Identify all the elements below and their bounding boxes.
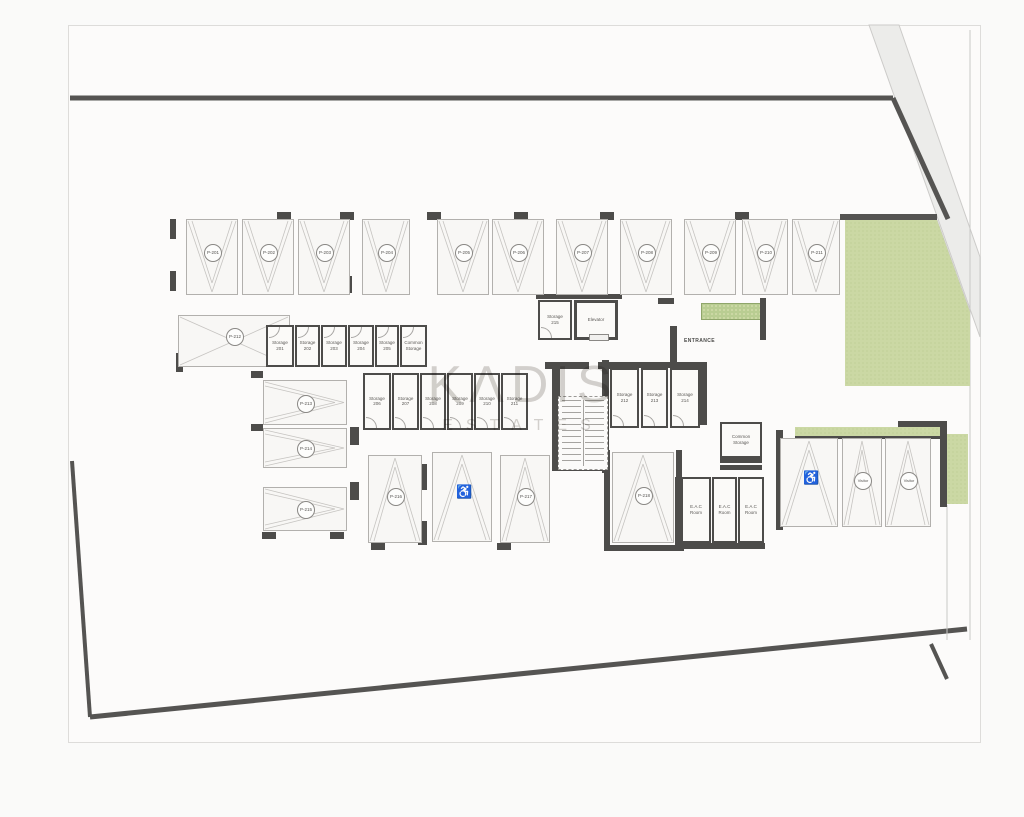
wall <box>720 458 762 463</box>
door-arc <box>395 417 406 428</box>
door-arc <box>269 327 280 338</box>
room-label: E.A.CRoom <box>740 504 762 515</box>
wheelchair-icon: ♿ <box>803 470 819 486</box>
room-label: Storage212 <box>612 392 637 403</box>
parking-stall-p-204: P-204 <box>362 219 410 295</box>
room-label: CommonStorage <box>722 434 760 445</box>
door-arc <box>541 327 552 338</box>
stall-label: Visitor <box>854 472 872 490</box>
pillar <box>330 532 344 539</box>
wall <box>898 421 947 427</box>
room-label: Storage201 <box>268 340 292 351</box>
parking-stall-p-217: P-217 <box>500 455 550 543</box>
wall <box>940 421 947 507</box>
door-arc <box>613 415 624 426</box>
door-arc <box>298 327 309 338</box>
stall-label: P-204 <box>378 244 396 262</box>
pillar <box>170 219 176 239</box>
entrance-label: ENTRANCE <box>684 338 715 344</box>
parking-stall-p-205: P-205 <box>437 219 489 295</box>
wall <box>604 545 684 551</box>
pillar <box>251 371 263 378</box>
staircase <box>558 396 608 470</box>
pillar <box>350 482 359 500</box>
elevator-room: Elevator <box>574 300 618 340</box>
storage-room-storage: CommonStorage <box>400 325 427 367</box>
parking-stall-accessible: ♿ <box>780 438 838 527</box>
storage-room-202: Storage202 <box>295 325 320 367</box>
door-arc <box>423 417 434 428</box>
stall-label: P-201 <box>204 244 222 262</box>
door-arc <box>644 415 655 426</box>
room-label: Storage207 <box>394 395 417 406</box>
storage-room-212: Storage212 <box>610 368 639 428</box>
parking-stall-p-210: P-210 <box>742 219 788 295</box>
storage-room-207: Storage207 <box>392 373 419 430</box>
pillar <box>350 427 359 445</box>
stair-flight <box>585 400 604 466</box>
storage-room-206: Storage206 <box>363 373 391 430</box>
pillar <box>262 532 276 539</box>
stall-label: P-215 <box>297 501 315 519</box>
green-area <box>701 303 763 320</box>
parking-stall-p-209: P-209 <box>684 219 736 295</box>
stall-label: P-203 <box>316 244 334 262</box>
wall <box>658 298 674 304</box>
common-room: CommonStorage <box>720 422 762 458</box>
parking-stall-p-216: P-216 <box>368 455 422 543</box>
stall-label: P-213 <box>297 395 315 413</box>
storage-room-210: Storage210 <box>474 373 500 430</box>
green-area <box>947 434 968 504</box>
parking-stall-p-208: P-208 <box>620 219 672 295</box>
e-a-c-room: E.A.CRoom <box>712 477 737 543</box>
room-label: Storage215 <box>540 314 570 325</box>
parking-stall-p-207: P-207 <box>556 219 608 295</box>
door-arc <box>378 327 389 338</box>
storage-room-215: Storage215 <box>538 300 572 340</box>
wall <box>675 543 765 549</box>
pillar <box>371 543 385 550</box>
stall-label: P-205 <box>455 244 473 262</box>
storage-room-204: Storage204 <box>348 325 374 367</box>
wall <box>720 465 762 470</box>
door-arc <box>673 415 684 426</box>
parking-stall-p-211: P-211 <box>792 219 840 295</box>
storage-room-203: Storage203 <box>321 325 347 367</box>
e-a-c-room: E.A.CRoom <box>738 477 764 543</box>
room-label: E.A.CRoom <box>683 504 709 515</box>
door-arc <box>477 417 488 428</box>
parking-stall-p-213: P-213 <box>263 380 347 425</box>
room-label: Storage205 <box>377 340 397 351</box>
wall <box>545 362 589 369</box>
stall-label: P-211 <box>808 244 826 262</box>
door-arc <box>504 417 515 428</box>
storage-room-213: Storage213 <box>641 368 668 428</box>
parking-stall-visitor: Visitor <box>842 438 882 527</box>
parking-stall-p-215: P-215 <box>263 487 347 531</box>
stall-label: P-202 <box>260 244 278 262</box>
stall-label: P-214 <box>297 440 315 458</box>
room-label: Storage209 <box>449 395 471 406</box>
parking-stall-p-218: P-218 <box>612 452 674 543</box>
elevator-door <box>589 334 609 341</box>
room-label: Elevator <box>577 317 615 323</box>
wall <box>700 368 707 425</box>
stall-label: P-210 <box>757 244 775 262</box>
parking-stall-p-201: P-201 <box>186 219 238 295</box>
room-label: Storage211 <box>503 395 526 406</box>
door-arc <box>351 327 362 338</box>
parking-stall-accessible: ♿ <box>432 452 492 542</box>
stall-label: P-212 <box>226 328 244 346</box>
pillar <box>170 271 176 291</box>
room-label: Storage214 <box>672 392 698 403</box>
room-label: Storage206 <box>365 395 389 406</box>
floor-plan-canvas: P-201P-202P-203P-204P-205P-206P-207P-208… <box>0 0 1024 817</box>
storage-room-201: Storage201 <box>266 325 294 367</box>
room-label: Storage204 <box>350 340 372 351</box>
storage-room-214: Storage214 <box>670 368 700 428</box>
wheelchair-icon: ♿ <box>456 484 472 500</box>
room-label: Storage202 <box>297 340 318 351</box>
green-area <box>795 427 945 436</box>
stair-divider <box>583 400 584 466</box>
stall-label: P-209 <box>702 244 720 262</box>
site-boundary <box>72 461 90 717</box>
parking-stall-p-206: P-206 <box>492 219 544 295</box>
site-boundary <box>90 629 967 717</box>
storage-room-208: Storage208 <box>420 373 446 430</box>
parking-stall-p-214: P-214 <box>263 428 347 468</box>
stall-label: Visitor <box>900 472 918 490</box>
stall-label: P-217 <box>517 488 535 506</box>
e-a-c-room: E.A.CRoom <box>681 477 711 543</box>
parking-stall-p-202: P-202 <box>242 219 294 295</box>
stall-label: P-207 <box>574 244 592 262</box>
site-boundary <box>931 644 947 679</box>
room-label: Storage208 <box>422 395 444 406</box>
room-label: Storage203 <box>323 340 345 351</box>
parking-stall-visitor: Visitor <box>885 438 931 527</box>
door-arc <box>366 417 377 428</box>
wall <box>760 298 766 340</box>
stair-flight <box>562 400 581 466</box>
stall-label: P-206 <box>510 244 528 262</box>
pillar <box>497 543 511 550</box>
storage-room-205: Storage205 <box>375 325 399 367</box>
door-arc <box>324 327 335 338</box>
room-label: CommonStorage <box>402 340 425 351</box>
storage-room-211: Storage211 <box>501 373 528 430</box>
room-label: Storage213 <box>643 392 666 403</box>
storage-room-209: Storage209 <box>447 373 473 430</box>
parking-stall-p-203: P-203 <box>298 219 350 295</box>
door-arc <box>450 417 461 428</box>
stall-label: P-208 <box>638 244 656 262</box>
room-label: Storage210 <box>476 395 498 406</box>
pillar <box>251 424 263 431</box>
room-label: E.A.CRoom <box>714 504 735 515</box>
stall-label: P-216 <box>387 488 405 506</box>
door-arc <box>403 327 414 338</box>
stall-label: P-218 <box>635 487 653 505</box>
